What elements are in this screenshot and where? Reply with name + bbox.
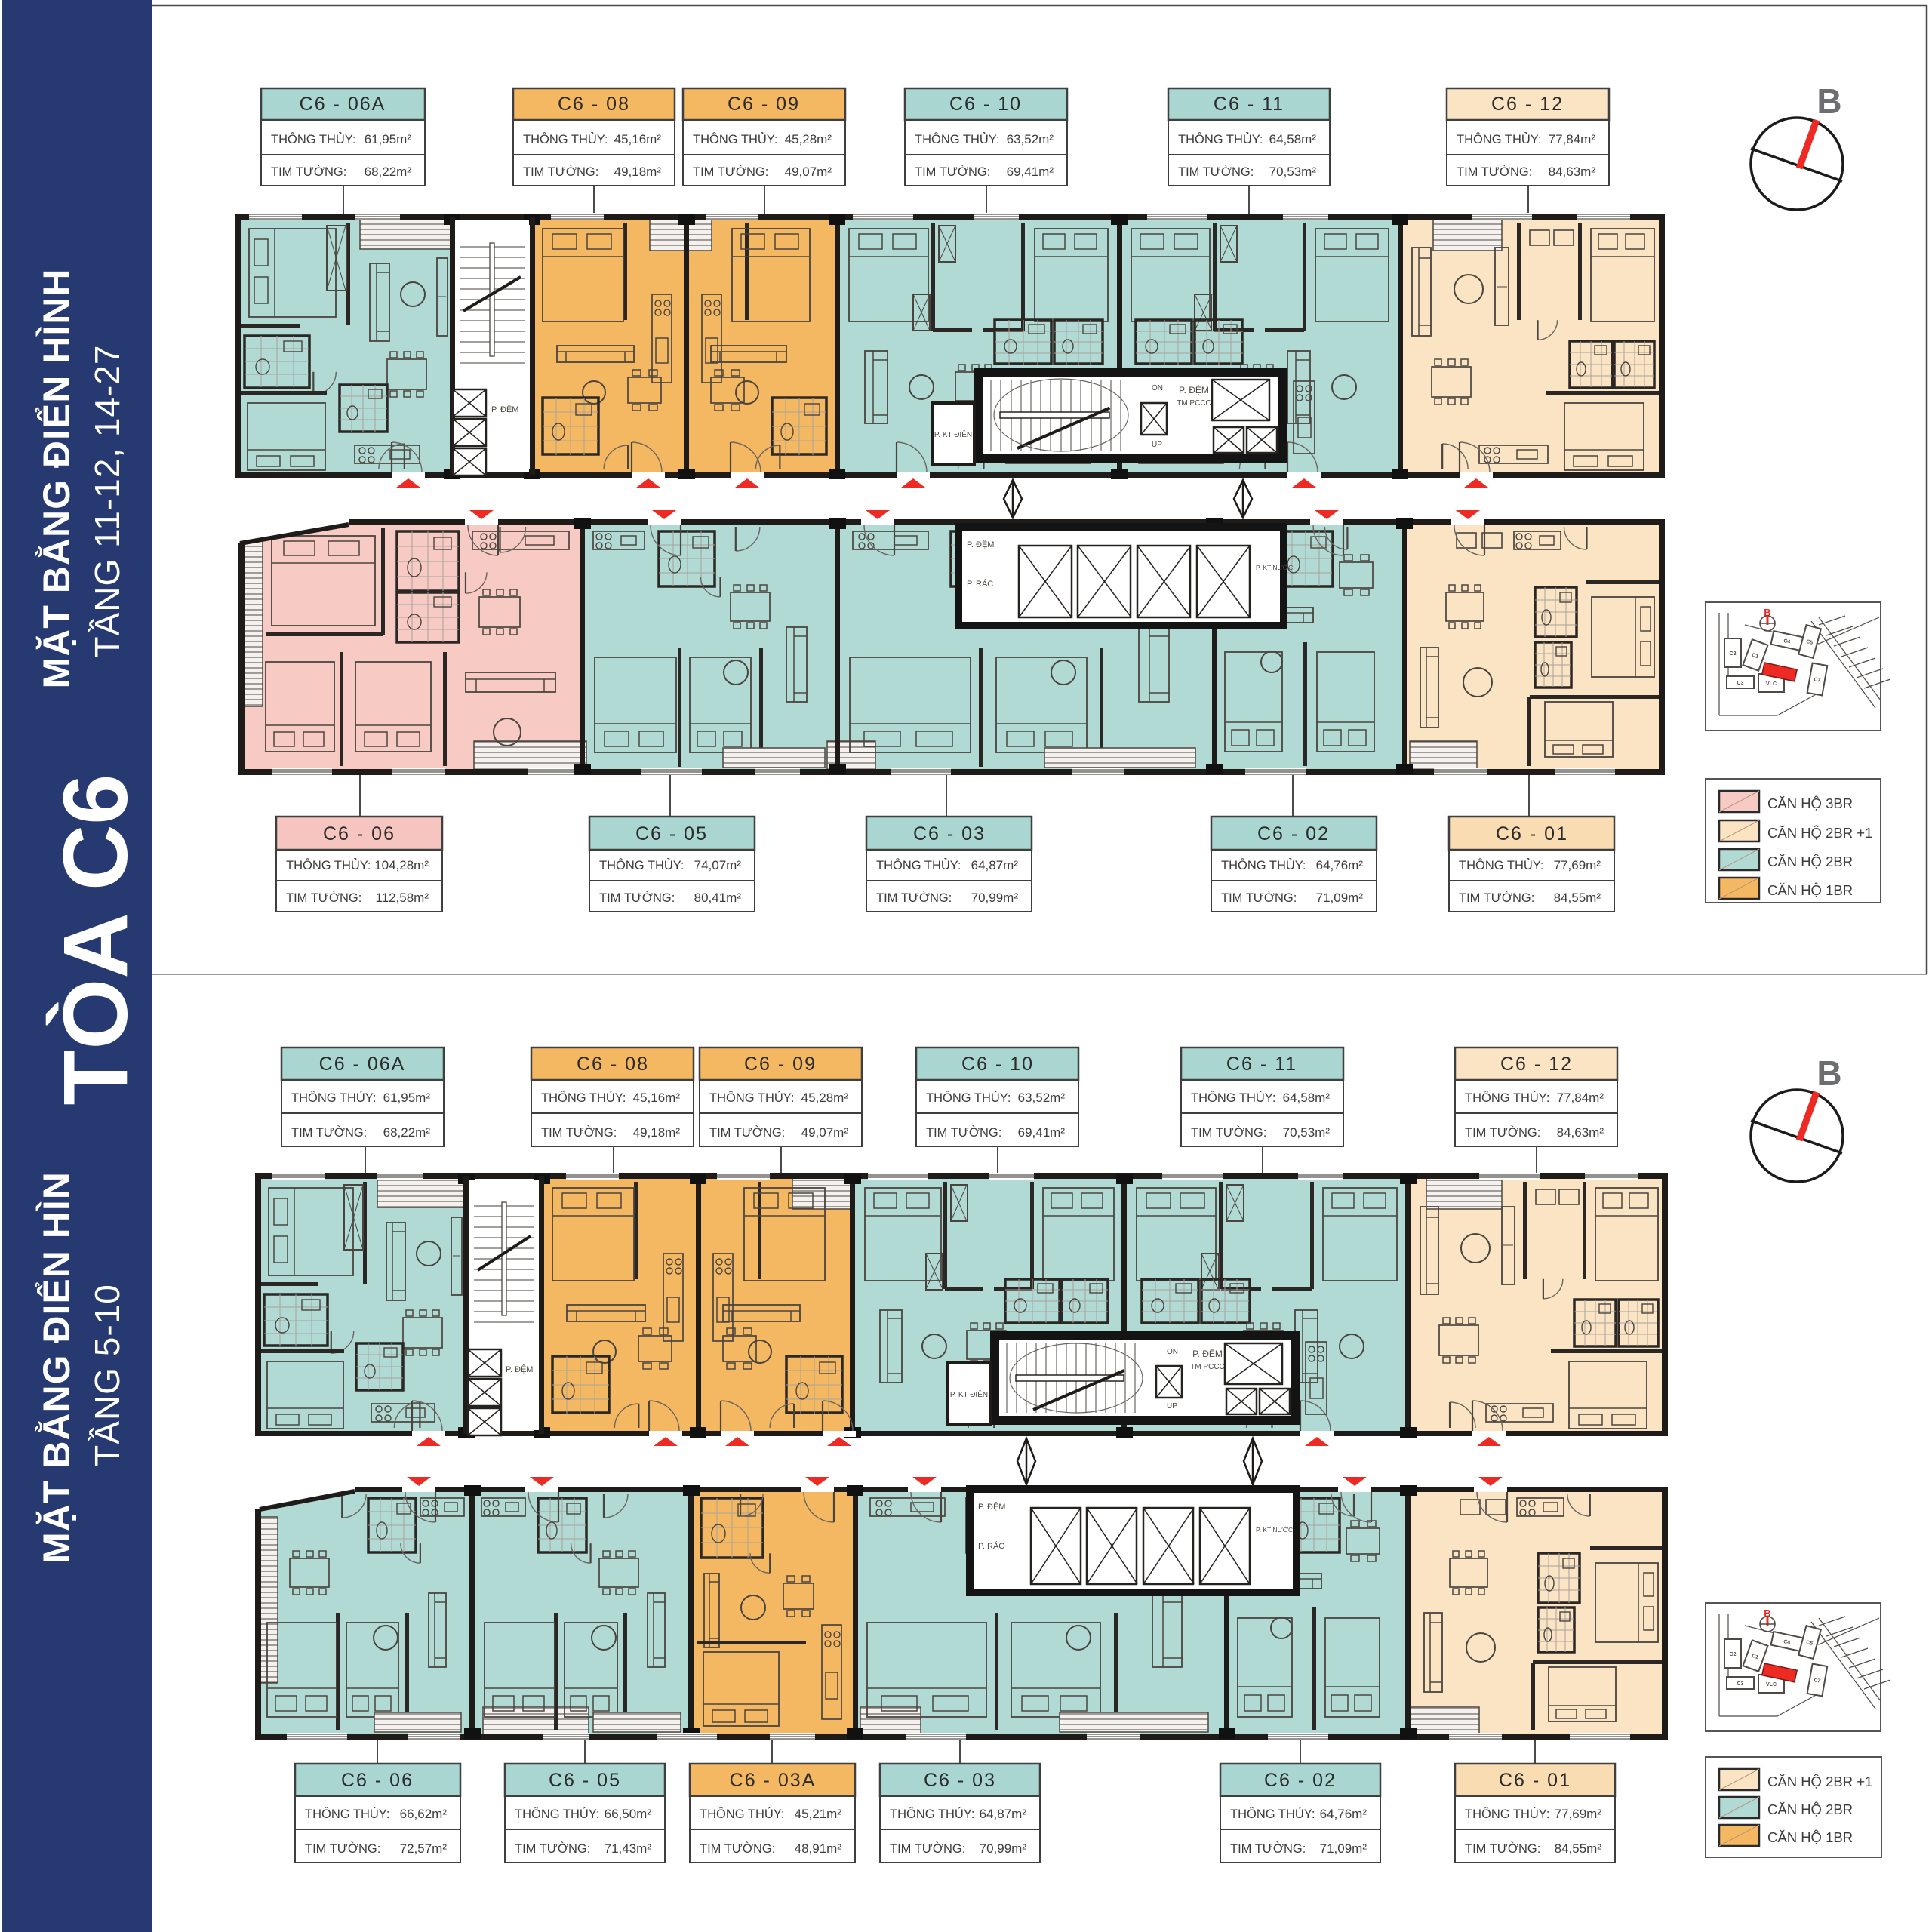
svg-text:TIM TƯỜNG:: TIM TƯỜNG:: [1465, 1125, 1540, 1140]
svg-text:TÒA C6: TÒA C6: [44, 774, 146, 1105]
svg-text:70,53m²: 70,53m²: [1283, 1125, 1331, 1140]
svg-text:C6 - 11: C6 - 11: [1226, 1054, 1297, 1075]
svg-text:C6 - 09: C6 - 09: [728, 94, 800, 115]
svg-text:72,57m²: 72,57m²: [400, 1841, 448, 1856]
svg-text:TIM TƯỜNG:: TIM TƯỜNG:: [890, 1841, 965, 1856]
svg-text:C6 - 08: C6 - 08: [558, 94, 630, 115]
svg-text:MẶT BẰNG ĐIỂN HÌNH: MẶT BẰNG ĐIỂN HÌNH: [35, 269, 78, 689]
svg-text:48,91m²: 48,91m²: [795, 1841, 842, 1856]
svg-text:63,52m²: 63,52m²: [1018, 1091, 1066, 1105]
svg-text:P. KT NƯỚC: P. KT NƯỚC: [1256, 564, 1293, 571]
svg-text:C6 - 10: C6 - 10: [949, 94, 1022, 115]
svg-text:VLC: VLC: [1766, 1682, 1777, 1687]
svg-text:C6 - 11: C6 - 11: [1214, 94, 1284, 115]
svg-text:THÔNG THỦY:: THÔNG THỦY:: [305, 1807, 389, 1821]
svg-text:TIM TƯỜNG:: TIM TƯỜNG:: [709, 1125, 785, 1140]
svg-text:68,22m²: 68,22m²: [365, 165, 412, 179]
svg-text:P. ĐỆM: P. ĐỆM: [1179, 384, 1209, 395]
svg-text:P. KT NƯỚC: P. KT NƯỚC: [1256, 1526, 1293, 1534]
svg-text:49,18m²: 49,18m²: [614, 165, 662, 179]
svg-text:ON: ON: [1152, 384, 1163, 392]
svg-text:C6 - 01: C6 - 01: [1499, 1770, 1571, 1791]
svg-text:69,41m²: 69,41m²: [1007, 165, 1054, 179]
svg-text:CĂN HỘ 3BR: CĂN HỘ 3BR: [1767, 795, 1853, 811]
svg-text:C6 - 05: C6 - 05: [635, 823, 708, 844]
svg-text:C6 - 05: C6 - 05: [549, 1770, 621, 1791]
svg-text:TIM TƯỜNG:: TIM TƯỜNG:: [305, 1841, 380, 1856]
svg-text:C6 - 02: C6 - 02: [1257, 823, 1330, 844]
svg-text:61,95m²: 61,95m²: [365, 132, 412, 146]
svg-text:TIM TƯỜNG:: TIM TƯỜNG:: [1459, 891, 1534, 905]
svg-text:B: B: [1817, 1054, 1841, 1093]
svg-text:CĂN HỘ 2BR +1: CĂN HỘ 2BR +1: [1767, 1774, 1872, 1789]
svg-text:MẶT BẰNG ĐIỂN HÌN: MẶT BẰNG ĐIỂN HÌN: [35, 1171, 78, 1564]
svg-text:CĂN HỘ 1BR: CĂN HỘ 1BR: [1767, 882, 1853, 898]
svg-text:45,16m²: 45,16m²: [633, 1091, 681, 1105]
svg-text:THÔNG THỦY:: THÔNG THỦY:: [693, 132, 777, 146]
svg-text:C6 - 02: C6 - 02: [1264, 1770, 1337, 1791]
svg-text:THÔNG THỦY:: THÔNG THỦY:: [709, 1091, 794, 1105]
svg-text:TẦNG 5-10: TẦNG 5-10: [88, 1284, 127, 1466]
svg-text:P. ĐỆM: P. ĐỆM: [491, 405, 518, 414]
svg-text:THÔNG THỦY:: THÔNG THỦY:: [1230, 1807, 1315, 1821]
svg-text:84,55m²: 84,55m²: [1555, 1841, 1602, 1856]
svg-text:C6 - 10: C6 - 10: [961, 1054, 1034, 1075]
svg-text:68,22m²: 68,22m²: [383, 1125, 431, 1140]
svg-text:C6 - 09: C6 - 09: [744, 1054, 817, 1075]
svg-text:THÔNG THỦY:: THÔNG THỦY:: [1459, 858, 1543, 872]
svg-text:TIM TƯỜNG:: TIM TƯỜNG:: [915, 165, 990, 179]
svg-text:P. RÁC: P. RÁC: [978, 1541, 1004, 1551]
svg-text:THÔNG THỦY:: THÔNG THỦY:: [1221, 858, 1306, 872]
svg-text:84,55m²: 84,55m²: [1554, 891, 1601, 905]
svg-text:THÔNG THỦY:: THÔNG THỦY:: [890, 1807, 974, 1821]
svg-text:TIM TƯỜNG:: TIM TƯỜNG:: [876, 891, 952, 905]
svg-text:TIM TƯỜNG:: TIM TƯỜNG:: [1465, 1841, 1540, 1856]
svg-text:THÔNG THỦY:: THÔNG THỦY:: [286, 858, 371, 872]
svg-text:104,28m²: 104,28m²: [374, 858, 429, 872]
svg-text:66,62m²: 66,62m²: [400, 1807, 448, 1821]
svg-text:CĂN HỘ 2BR: CĂN HỘ 2BR: [1767, 854, 1853, 869]
svg-text:C6 - 06A: C6 - 06A: [319, 1054, 406, 1075]
svg-text:TIM TƯỜNG:: TIM TƯỜNG:: [286, 891, 361, 905]
svg-text:70,99m²: 70,99m²: [980, 1841, 1027, 1856]
svg-text:70,99m²: 70,99m²: [971, 891, 1019, 905]
svg-text:THÔNG THỦY:: THÔNG THỦY:: [541, 1091, 626, 1105]
svg-text:THÔNG THỦY:: THÔNG THỦY:: [1465, 1091, 1549, 1105]
svg-text:77,84m²: 77,84m²: [1557, 1091, 1604, 1105]
svg-text:64,58m²: 64,58m²: [1283, 1091, 1331, 1105]
svg-text:112,58m²: 112,58m²: [375, 891, 429, 905]
svg-text:THÔNG THỦY:: THÔNG THỦY:: [1178, 132, 1263, 146]
svg-text:TẦNG 11-12, 14-27: TẦNG 11-12, 14-27: [88, 344, 127, 657]
svg-text:P. ĐỆM: P. ĐỆM: [967, 540, 994, 549]
svg-text:71,43m²: 71,43m²: [605, 1841, 652, 1856]
svg-text:66,50m²: 66,50m²: [605, 1807, 652, 1821]
svg-text:45,28m²: 45,28m²: [801, 1091, 849, 1105]
svg-text:TIM TƯỜNG:: TIM TƯỜNG:: [1178, 165, 1254, 179]
svg-text:TIM TƯỜNG:: TIM TƯỜNG:: [291, 1125, 367, 1140]
svg-text:THÔNG THỦY:: THÔNG THỦY:: [1465, 1807, 1549, 1821]
svg-text:CĂN HỘ 2BR: CĂN HỘ 2BR: [1767, 1801, 1853, 1817]
svg-text:THÔNG THỦY:: THÔNG THỦY:: [926, 1091, 1011, 1105]
svg-text:77,84m²: 77,84m²: [1549, 132, 1596, 146]
svg-text:P. KT ĐIỆN: P. KT ĐIỆN: [934, 429, 972, 439]
svg-text:P. KT ĐIỆN: P. KT ĐIỆN: [950, 1389, 988, 1399]
svg-text:64,87m²: 64,87m²: [971, 858, 1019, 872]
svg-text:TIM TƯỜNG:: TIM TƯỜNG:: [599, 891, 675, 905]
svg-text:C6 - 08: C6 - 08: [577, 1054, 649, 1075]
svg-text:TIM TƯỜNG:: TIM TƯỜNG:: [523, 165, 598, 179]
svg-text:UP: UP: [1167, 1402, 1177, 1411]
svg-text:C6 - 06A: C6 - 06A: [300, 94, 386, 115]
svg-text:THÔNG THỦY:: THÔNG THỦY:: [915, 132, 999, 146]
svg-text:THÔNG THỦY:: THÔNG THỦY:: [523, 132, 608, 146]
svg-text:61,95m²: 61,95m²: [383, 1091, 431, 1105]
svg-text:64,76m²: 64,76m²: [1320, 1807, 1367, 1821]
svg-text:UP: UP: [1152, 441, 1162, 449]
svg-text:THÔNG THỦY:: THÔNG THỦY:: [1457, 132, 1541, 146]
svg-text:TIM TƯỜNG:: TIM TƯỜNG:: [541, 1125, 617, 1140]
svg-text:C3: C3: [1737, 1681, 1744, 1687]
svg-text:CĂN HỘ 1BR: CĂN HỘ 1BR: [1767, 1829, 1853, 1845]
svg-text:TIM TƯỜNG:: TIM TƯỜNG:: [700, 1841, 775, 1856]
svg-text:P. ĐỆM: P. ĐỆM: [1192, 1348, 1223, 1359]
svg-text:C3: C3: [1737, 681, 1744, 686]
svg-text:THÔNG THỦY:: THÔNG THỦY:: [700, 1807, 784, 1821]
svg-text:THÔNG THỦY:: THÔNG THỦY:: [515, 1807, 599, 1821]
svg-text:THÔNG THỦY:: THÔNG THỦY:: [1191, 1091, 1275, 1105]
svg-text:84,63m²: 84,63m²: [1549, 165, 1596, 179]
svg-text:77,69m²: 77,69m²: [1555, 1807, 1602, 1821]
svg-text:THÔNG THỦY:: THÔNG THỦY:: [291, 1091, 376, 1105]
svg-text:63,52m²: 63,52m²: [1007, 132, 1054, 146]
svg-text:THÔNG THỦY:: THÔNG THỦY:: [876, 858, 961, 872]
svg-text:C6 - 06: C6 - 06: [323, 823, 395, 844]
svg-text:64,58m²: 64,58m²: [1269, 132, 1317, 146]
svg-text:80,41m²: 80,41m²: [694, 891, 742, 905]
svg-text:B: B: [1817, 82, 1841, 121]
svg-text:C2: C2: [1730, 651, 1737, 657]
svg-text:ON: ON: [1167, 1348, 1178, 1356]
svg-text:VLC: VLC: [1766, 681, 1777, 687]
svg-text:P. RÁC: P. RÁC: [967, 579, 993, 589]
svg-text:C6 - 06: C6 - 06: [341, 1770, 414, 1791]
svg-text:45,28m²: 45,28m²: [785, 132, 832, 146]
svg-text:TM PCCC: TM PCCC: [1190, 1363, 1225, 1371]
svg-text:70,53m²: 70,53m²: [1269, 165, 1317, 179]
svg-text:74,07m²: 74,07m²: [694, 858, 742, 872]
svg-text:P. ĐỆM: P. ĐỆM: [506, 1364, 533, 1374]
svg-text:77,69m²: 77,69m²: [1554, 858, 1601, 872]
svg-text:69,41m²: 69,41m²: [1018, 1125, 1066, 1140]
svg-text:TIM TƯỜNG:: TIM TƯỜNG:: [693, 165, 768, 179]
svg-text:49,07m²: 49,07m²: [785, 165, 832, 179]
svg-text:C6 - 03: C6 - 03: [913, 823, 986, 844]
svg-text:71,09m²: 71,09m²: [1316, 891, 1364, 905]
svg-text:84,63m²: 84,63m²: [1557, 1125, 1604, 1140]
svg-text:TIM TƯỜNG:: TIM TƯỜNG:: [515, 1841, 590, 1856]
svg-text:C6 - 12: C6 - 12: [1491, 94, 1564, 115]
svg-text:C6 - 03A: C6 - 03A: [730, 1770, 817, 1791]
svg-text:TIM TƯỜNG:: TIM TƯỜNG:: [1221, 891, 1297, 905]
svg-text:TIM TƯỜNG:: TIM TƯỜNG:: [1457, 165, 1532, 179]
svg-text:45,21m²: 45,21m²: [795, 1807, 842, 1821]
svg-text:C6 - 01: C6 - 01: [1496, 823, 1568, 844]
svg-text:TIM TƯỜNG:: TIM TƯỜNG:: [271, 165, 346, 179]
svg-text:45,16m²: 45,16m²: [614, 132, 662, 146]
svg-text:CĂN HỘ 2BR +1: CĂN HỘ 2BR +1: [1767, 825, 1872, 841]
svg-text:C6 - 12: C6 - 12: [1500, 1054, 1573, 1075]
svg-text:TIM TƯỜNG:: TIM TƯỜNG:: [1230, 1841, 1306, 1856]
svg-text:TIM TƯỜNG:: TIM TƯỜNG:: [1191, 1125, 1266, 1140]
svg-text:C2: C2: [1730, 1652, 1737, 1657]
svg-text:C6 - 03: C6 - 03: [924, 1770, 996, 1791]
svg-text:71,09m²: 71,09m²: [1320, 1841, 1367, 1856]
svg-text:64,76m²: 64,76m²: [1316, 858, 1364, 872]
svg-text:64,87m²: 64,87m²: [980, 1807, 1027, 1821]
svg-text:49,18m²: 49,18m²: [633, 1125, 681, 1140]
svg-text:TM PCCC: TM PCCC: [1177, 399, 1211, 408]
svg-text:P. ĐỆM: P. ĐỆM: [978, 1502, 1005, 1512]
svg-text:THÔNG THỦY:: THÔNG THỦY:: [271, 132, 355, 146]
svg-text:THÔNG THỦY:: THÔNG THỦY:: [599, 858, 684, 872]
svg-text:TIM TƯỜNG:: TIM TƯỜNG:: [926, 1125, 1001, 1140]
svg-text:49,07m²: 49,07m²: [801, 1125, 849, 1140]
